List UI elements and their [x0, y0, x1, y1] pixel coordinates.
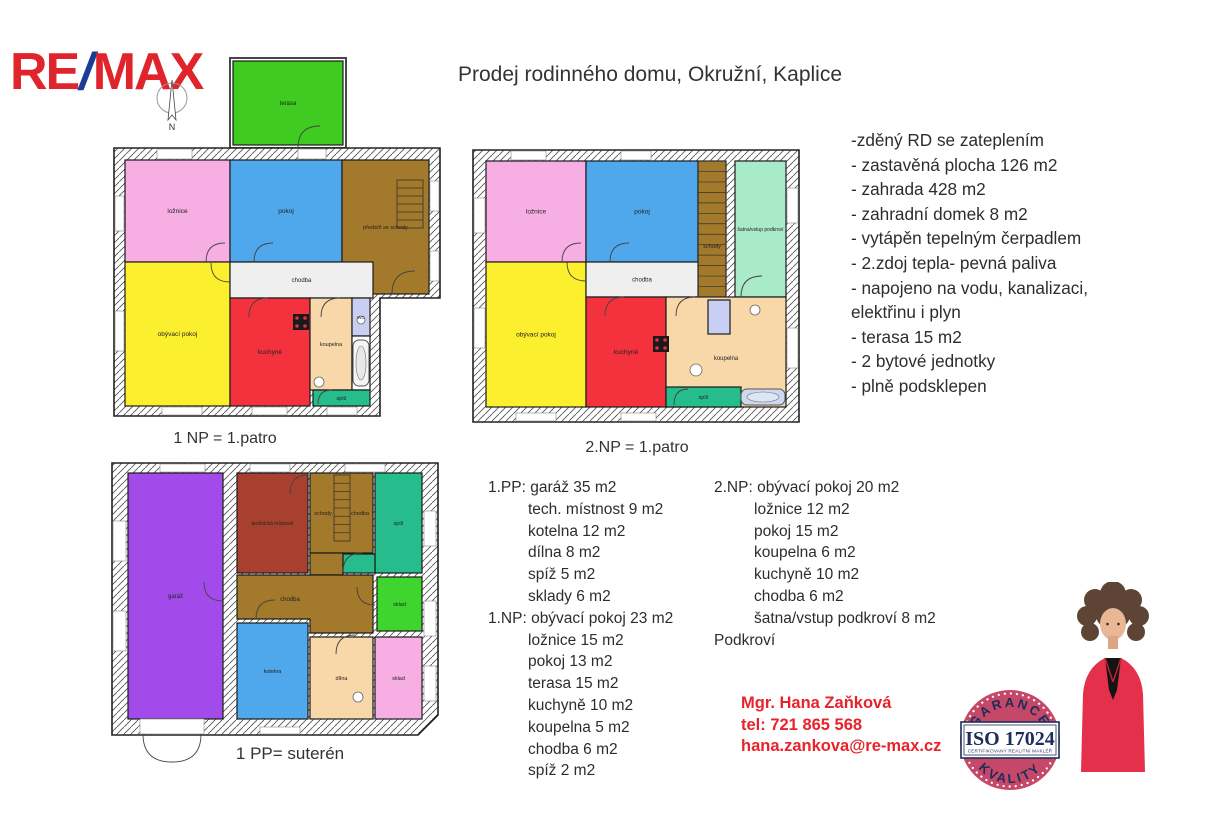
text-line: sklady 6 m2 — [488, 586, 673, 608]
page-title: Prodej rodinného domu, Okružní, Kaplice — [400, 63, 900, 87]
svg-text:kuchyně: kuchyně — [614, 349, 639, 356]
svg-text:předsíň se schody: předsíň se schody — [363, 225, 408, 231]
svg-text:schody: schody — [703, 244, 721, 250]
svg-text:koupelna: koupelna — [714, 356, 739, 362]
svg-text:terasa: terasa — [280, 101, 297, 107]
room-list-left: 1.PP: garáž 35 m2tech. místnost 9 m2kote… — [488, 477, 673, 782]
text-line: chodba 6 m2 — [488, 739, 673, 761]
text-line: - zastavěná plocha 126 m2 — [851, 153, 1088, 178]
svg-text:šatna/vstup podkroví: šatna/vstup podkroví — [737, 227, 784, 233]
text-line: - napojeno na vodu, kanalizaci, — [851, 276, 1088, 301]
caption-1np: 1 NP = 1.patro — [115, 430, 335, 448]
svg-text:chodba: chodba — [351, 511, 370, 517]
floorplan-1np: terasaložnicepokojpředsíň se schodyobýva… — [112, 56, 442, 424]
text-line: - zahradní domek 8 m2 — [851, 202, 1088, 227]
flyer-page: RE/MAX N Prodej rodinného domu, Okružní,… — [0, 0, 1205, 816]
svg-text:dílna: dílna — [336, 676, 349, 682]
text-line: 1.PP: garáž 35 m2 — [488, 477, 673, 499]
svg-text:pokoj: pokoj — [634, 209, 650, 216]
text-line: šatna/vstup podkroví 8 m2 — [714, 608, 936, 630]
text-line: kotelna 12 m2 — [488, 521, 673, 543]
floorplan-1pp: garážtechnická místnostspížchodbaskladko… — [110, 461, 440, 765]
text-line: kuchyně 10 m2 — [714, 564, 936, 586]
svg-text:obývací pokoj: obývací pokoj — [158, 331, 198, 338]
agent-photo — [1063, 582, 1163, 772]
room-list-right: 2.NP: obývací pokoj 20 m2ložnice 12 m2po… — [714, 477, 936, 651]
svg-text:garáž: garáž — [168, 594, 183, 600]
text-line: elektřinu i plyn — [851, 300, 1088, 325]
text-line: - 2.zdoj tepla- pevná paliva — [851, 251, 1088, 276]
svg-text:spíž: spíž — [336, 396, 346, 402]
svg-text:kotelna: kotelna — [264, 669, 283, 675]
svg-text:obývací pokoj: obývací pokoj — [516, 332, 556, 339]
text-line: kuchyně 10 m2 — [488, 695, 673, 717]
text-line: dílna 8 m2 — [488, 542, 673, 564]
text-line: Podkroví — [714, 630, 936, 652]
text-line: terasa 15 m2 — [488, 673, 673, 695]
text-line: koupelna 5 m2 — [488, 717, 673, 739]
svg-text:technická místnost: technická místnost — [252, 521, 294, 527]
agent-phone: tel: 721 865 568 — [741, 715, 941, 737]
text-line: 2.NP: obývací pokoj 20 m2 — [714, 477, 936, 499]
svg-text:kuchyně: kuchyně — [258, 349, 283, 356]
agent-name: Mgr. Hana Zaňková — [741, 693, 941, 715]
agent-contact: Mgr. Hana Zaňková tel: 721 865 568 hana.… — [741, 693, 941, 758]
text-line: ložnice 15 m2 — [488, 630, 673, 652]
iso-17024-badge: GARANCE KVALITY ISO 17024 CERTIFIKOVANÝ … — [956, 686, 1064, 794]
text-line: 1.NP: obývací pokoj 23 m2 — [488, 608, 673, 630]
logo-slash-icon: / — [78, 43, 92, 101]
svg-text:spíž: spíž — [393, 521, 403, 527]
logo-re: RE — [10, 43, 78, 101]
text-line: chodba 6 m2 — [714, 586, 936, 608]
agent-photo-neck — [1108, 636, 1118, 649]
text-line: ložnice 12 m2 — [714, 499, 936, 521]
agent-email[interactable]: hana.zankova@re-max.cz — [741, 736, 941, 758]
text-line: tech. místnost 9 m2 — [488, 499, 673, 521]
text-line: spíž 2 m2 — [488, 760, 673, 782]
svg-text:chodba: chodba — [632, 278, 652, 284]
caption-2np: 2.NP = 1.patro — [527, 439, 747, 457]
text-line: - terasa 15 m2 — [851, 325, 1088, 350]
text-line: -zděný RD se zateplením — [851, 128, 1088, 153]
svg-text:koupelna: koupelna — [320, 342, 343, 348]
floorplan-2np: ložnicepokojschodyšatna/vstup podkrovíob… — [471, 148, 801, 424]
svg-text:ložnice: ložnice — [167, 208, 188, 215]
svg-text:chodba: chodba — [280, 597, 300, 603]
caption-1pp: 1 PP= suterén — [180, 744, 400, 764]
text-line: - vytápěn tepelným čerpadlem — [851, 226, 1088, 251]
svg-text:sklad: sklad — [392, 676, 405, 682]
badge-subtitle: CERTIFIKOVANÝ REALITNÍ MAKLÉŘ — [968, 747, 1053, 754]
svg-text:WC: WC — [357, 315, 365, 320]
svg-text:ložnice: ložnice — [526, 209, 547, 216]
svg-text:pokoj: pokoj — [278, 208, 294, 215]
agent-photo-face — [1100, 608, 1126, 640]
text-line: pokoj 15 m2 — [714, 521, 936, 543]
svg-text:spíž: spíž — [698, 395, 708, 401]
badge-iso-code: ISO 17024 — [965, 728, 1054, 750]
svg-text:chodba: chodba — [292, 278, 312, 284]
text-line: koupelna 6 m2 — [714, 542, 936, 564]
property-features: -zděný RD se zateplením- zastavěná ploch… — [851, 128, 1088, 399]
text-line: - plně podsklepen — [851, 374, 1088, 399]
text-line: spíž 5 m2 — [488, 564, 673, 586]
svg-text:schody: schody — [314, 511, 332, 517]
text-line: - 2 bytové jednotky — [851, 349, 1088, 374]
text-line: pokoj 13 m2 — [488, 651, 673, 673]
svg-text:sklad: sklad — [393, 602, 406, 608]
text-line: - zahrada 428 m2 — [851, 177, 1088, 202]
